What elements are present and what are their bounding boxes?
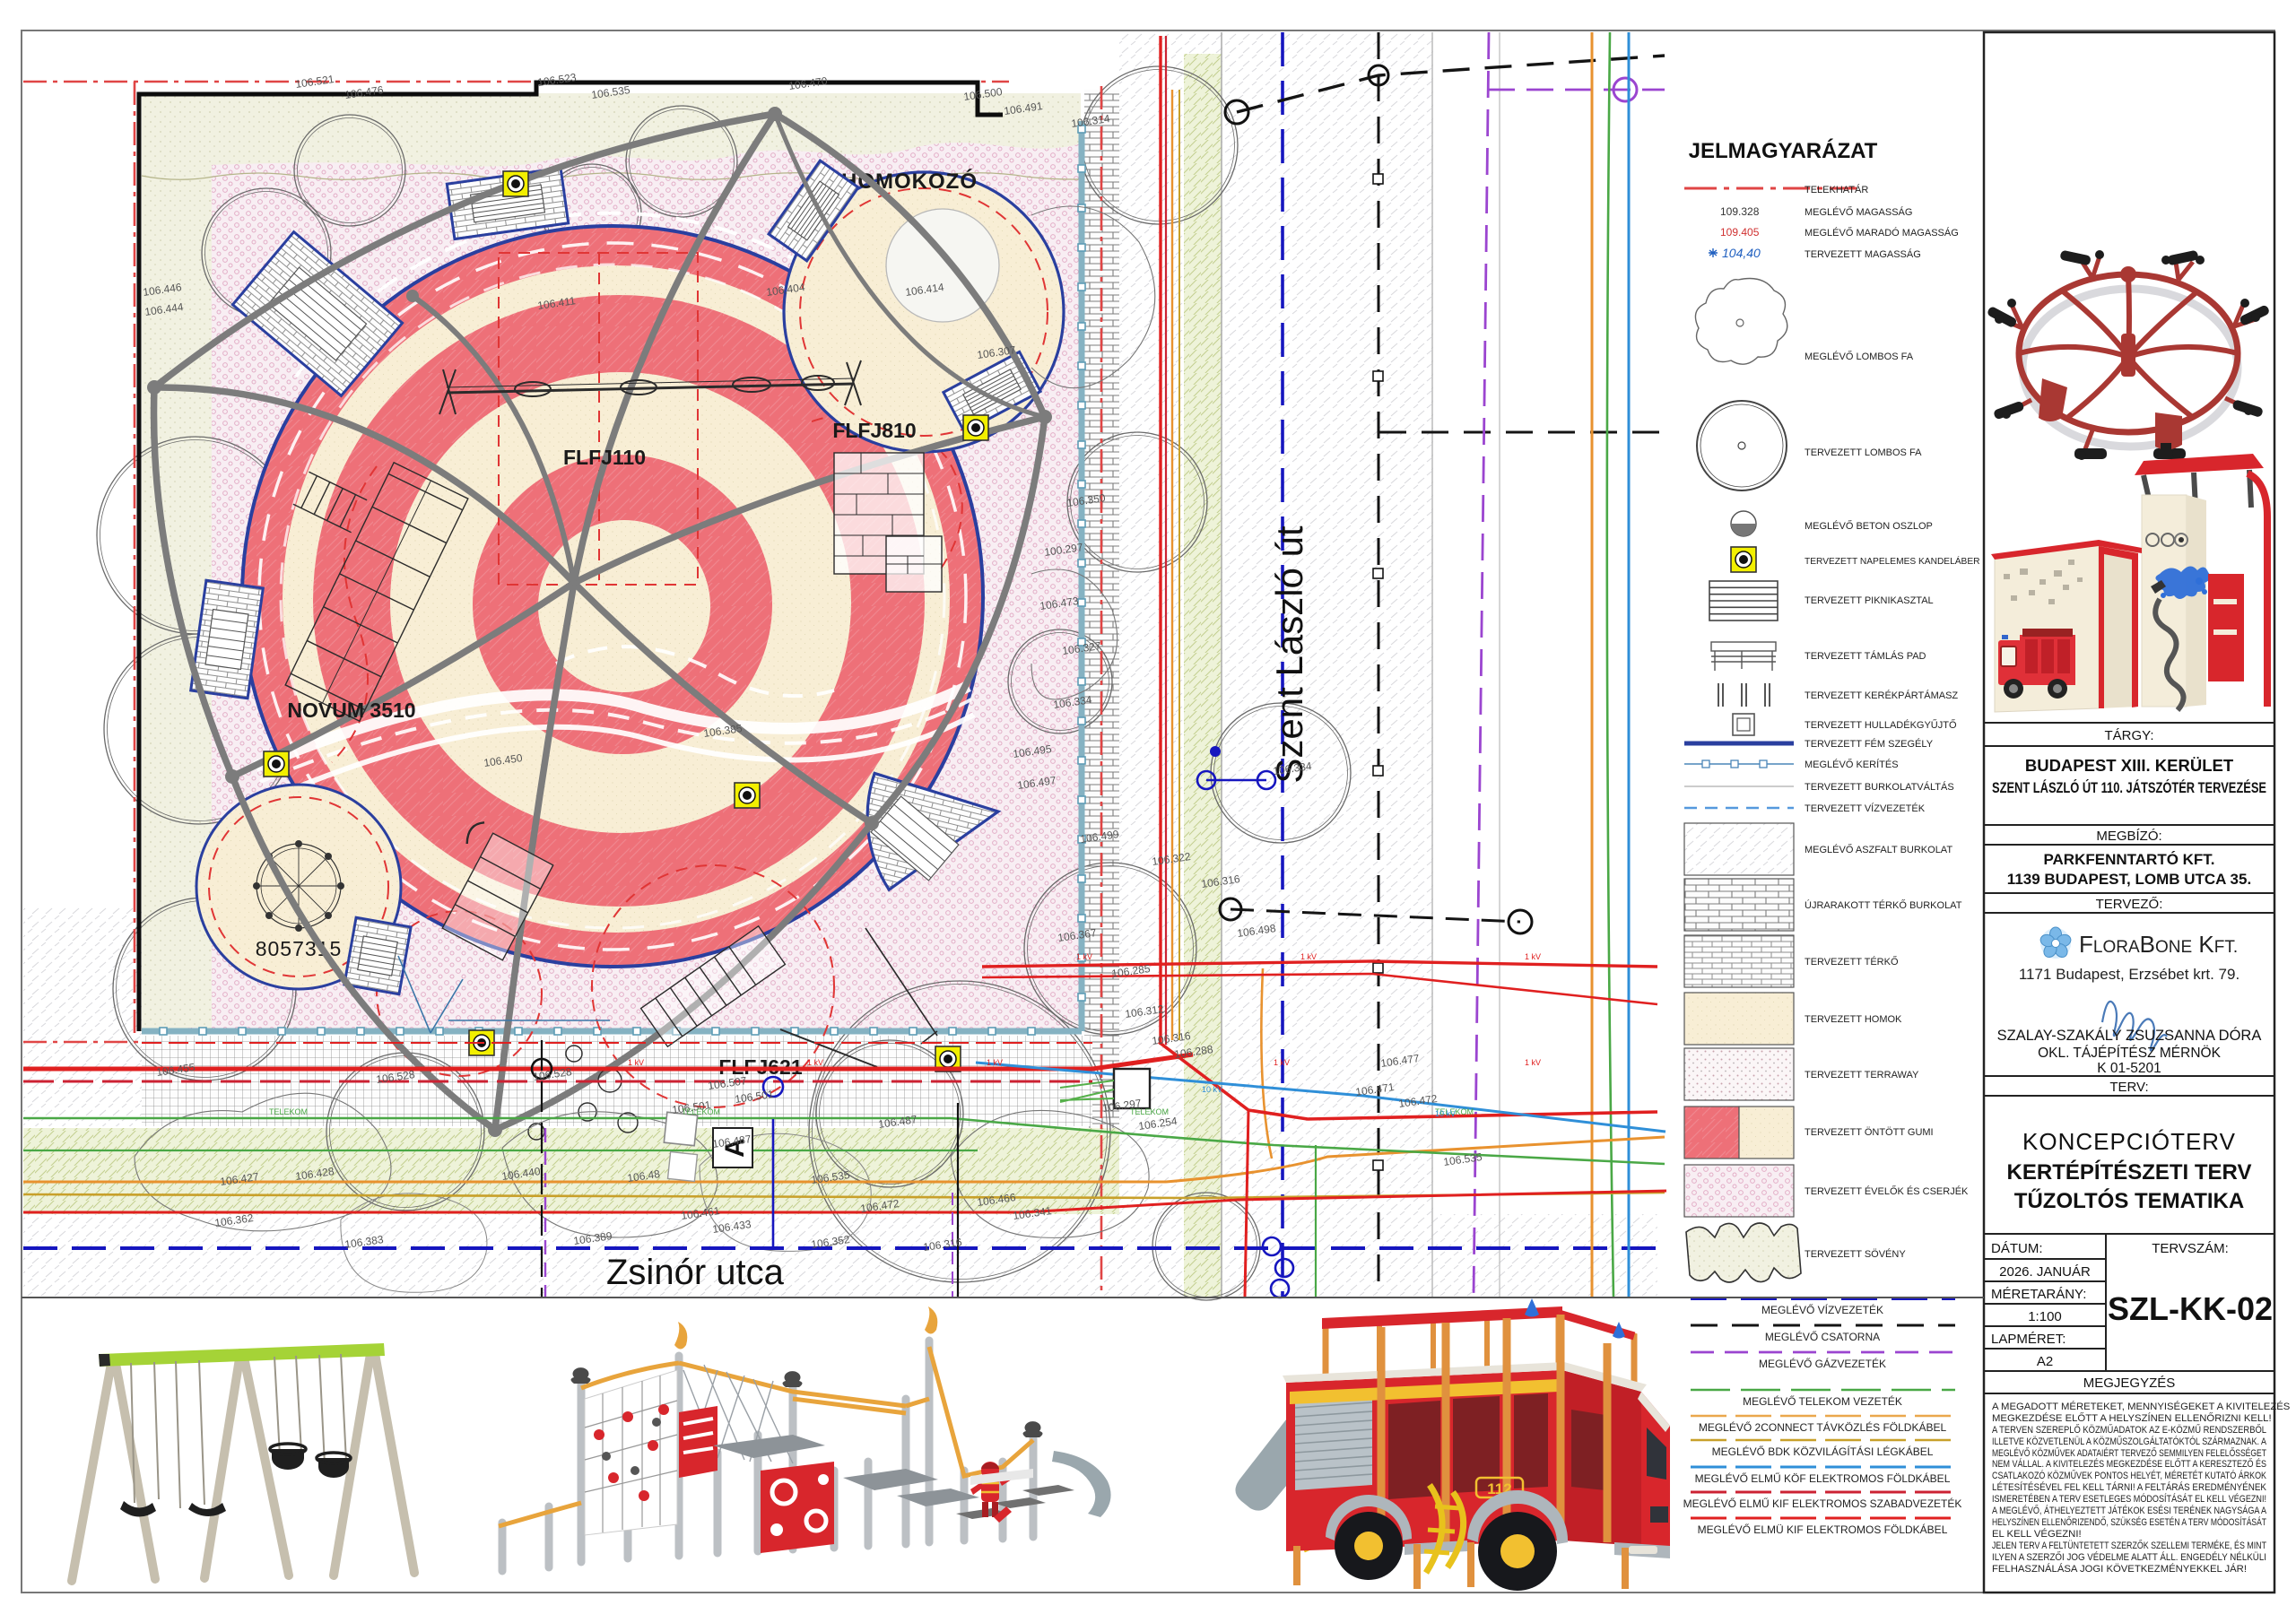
svg-text:TERVEZETT TÉRKŐ: TERVEZETT TÉRKŐ [1805,955,1899,968]
svg-text:MEGKEZDÉSE ELŐTT A HELYSZÍNEN: MEGKEZDÉSE ELŐTT A HELYSZÍNEN ELLENŐRIZN… [1992,1411,2272,1424]
svg-text:1 kV: 1 kV [807,1058,823,1067]
svg-text:TERV:: TERV: [2109,1080,2148,1095]
svg-text:Szent László út: Szent László út [1268,525,1310,784]
svg-text:A MEGADOTT MÉRETEKET, MENNYISÉ: A MEGADOTT MÉRETEKET, MENNYISÉGEKET A KI… [1992,1401,2291,1412]
svg-text:A MEGLÉVŐ, ÁTHELYEZTETT JÁTÉKO: A MEGLÉVŐ, ÁTHELYEZTETT JÁTÉKOK ESÉSI TE… [1992,1504,2266,1516]
svg-text:1 kV: 1 kV [1076,952,1092,961]
svg-text:104,40: 104,40 [1722,246,1761,260]
svg-text:TELEKOM: TELEKOM [682,1107,720,1116]
svg-text:MEGLÉVŐ MAGASSÁG: MEGLÉVŐ MAGASSÁG [1805,205,1912,218]
svg-text:TERVEZETT PIKNIKASZTAL: TERVEZETT PIKNIKASZTAL [1805,595,1934,606]
svg-text:1 kV: 1 kV [1300,952,1317,961]
svg-text:MEGLÉVŐ KÖZMŰVEK ADATAIÉRT TER: MEGLÉVŐ KÖZMŰVEK ADATAIÉRT TERVEZŐ SEMMI… [1992,1446,2266,1459]
svg-text:TERVEZETT BURKOLATVÁLTÁS: TERVEZETT BURKOLATVÁLTÁS [1805,781,1954,793]
svg-text:JELEN TERV A FELTÜNTETETT SZER: JELEN TERV A FELTÜNTETETT SZERZŐK SZELLE… [1992,1539,2266,1551]
svg-text:10 kV: 10 kV [1202,1085,1222,1094]
svg-text:MÉRETARÁNY:: MÉRETARÁNY: [1991,1287,2086,1302]
svg-text:1171 Budapest, Erzsébet krt. 7: 1171 Budapest, Erzsébet krt. 79. [2019,966,2239,983]
svg-text:EL KELL VÉGEZNI!: EL KELL VÉGEZNI! [1992,1528,2082,1540]
svg-text:MEGLÉVŐ MARADÓ MAGASSÁG: MEGLÉVŐ MARADÓ MAGASSÁG [1805,226,1959,239]
svg-text:OKL. TÁJÉPÍTÉSZ MÉRNÖK: OKL. TÁJÉPÍTÉSZ MÉRNÖK [2038,1045,2222,1061]
svg-text:SZL-KK-02: SZL-KK-02 [2108,1290,2273,1327]
svg-text:NOVUM 3510: NOVUM 3510 [287,699,415,722]
svg-text:NEM VÁLLAL. A KIVITELEZÉS MEGK: NEM VÁLLAL. A KIVITELEZÉS MEGKEZDÉSE ELŐ… [1992,1457,2266,1470]
svg-text:TERVEZETT MAGASSÁG: TERVEZETT MAGASSÁG [1805,248,1921,260]
svg-text:TERVSZÁM:: TERVSZÁM: [2152,1241,2229,1256]
svg-text:KERTÉPÍTÉSZETI TERV: KERTÉPÍTÉSZETI TERV [2007,1159,2252,1185]
svg-text:TERVEZETT HOMOK: TERVEZETT HOMOK [1805,1014,1902,1025]
svg-text:MEGLÉVŐ GÁZVEZETÉK: MEGLÉVŐ GÁZVEZETÉK [1759,1357,1886,1370]
svg-text:A TERVEN SZEREPLŐ KÖZMŰADATOK: A TERVEN SZEREPLŐ KÖZMŰADATOK AZ E-KÖZMŰ… [1992,1423,2266,1436]
svg-text:1:100: 1:100 [2028,1309,2062,1324]
svg-text:SZALAY-SZAKÁLY ZSUZSANNA DÓRA: SZALAY-SZAKÁLY ZSUZSANNA DÓRA [1997,1027,2262,1044]
svg-text:TELEKOM: TELEKOM [269,1107,308,1116]
svg-text:TÁRGY:: TÁRGY: [2104,728,2153,743]
svg-text:1 kV: 1 kV [628,1058,644,1067]
svg-text:HELYSZÍNEN ELLENŐRIZENDŐ, SZÜK: HELYSZÍNEN ELLENŐRIZENDŐ, SZÜKSÉG ESETÉN… [1992,1515,2266,1528]
svg-text:MEGLÉVŐ VÍZVEZETÉK: MEGLÉVŐ VÍZVEZETÉK [1761,1303,1883,1316]
svg-text:DÁTUM:: DÁTUM: [1991,1241,2043,1256]
svg-text:TERVEZETT VÍZVEZETÉK: TERVEZETT VÍZVEZETÉK [1805,803,1926,814]
svg-text:ILYEN A SZERZŐI JOG VÉDELME AL: ILYEN A SZERZŐI JOG VÉDELME ALATT ÁLL. E… [1992,1550,2266,1563]
svg-text:ISMERETÉBEN A TERV ESETLEGES: ISMERETÉBEN A TERV ESETLEGES MÓDOSÍTÁSÁT… [1992,1493,2266,1505]
svg-text:TERVEZŐ:: TERVEZŐ: [2096,897,2163,912]
svg-text:TERVEZETT KERÉKPÁRTÁMASZ: TERVEZETT KERÉKPÁRTÁMASZ [1805,690,1958,701]
svg-text:109.328: 109.328 [1720,205,1760,218]
svg-text:TELEKOM: TELEKOM [1130,1107,1169,1116]
svg-text:JELMAGYARÁZAT: JELMAGYARÁZAT [1689,138,1878,163]
svg-text:TŰZOLTÓS TEMATIKA: TŰZOLTÓS TEMATIKA [2014,1188,2244,1213]
svg-text:1 kV: 1 kV [1525,1058,1541,1067]
svg-text:KONCEPCIÓTERV: KONCEPCIÓTERV [2022,1128,2236,1155]
svg-text:MEGLÉVŐ KERÍTÉS: MEGLÉVŐ KERÍTÉS [1805,758,1899,770]
svg-text:MEGLÉVŐ ELMŰ KÖF ELEKTROMOS FÖ: MEGLÉVŐ ELMŰ KÖF ELEKTROMOS FÖLDKÁBEL [1695,1471,1951,1485]
svg-text:MEGJEGYZÉS: MEGJEGYZÉS [2083,1376,2176,1391]
svg-text:FLFJ810: FLFJ810 [832,419,916,442]
svg-text:TERVEZETT SÖVÉNY: TERVEZETT SÖVÉNY [1805,1248,1906,1260]
svg-text:1139 BUDAPEST, LOMB UTCA 35.: 1139 BUDAPEST, LOMB UTCA 35. [2007,871,2251,888]
svg-text:FELHASZNÁLÁSA JOGI KÖVETKEZMÉN: FELHASZNÁLÁSA JOGI KÖVETKEZMÉNYEKKEL JÁR… [1992,1563,2247,1575]
svg-text:MEGLÉVŐ CSATORNA: MEGLÉVŐ CSATORNA [1765,1330,1880,1343]
svg-text:Zsinór utca: Zsinór utca [606,1253,785,1292]
svg-text:PARKFENNTARTÓ KFT.: PARKFENNTARTÓ KFT. [2043,851,2214,868]
svg-text:TERVEZETT NAPELEMES KANDELÁBER: TERVEZETT NAPELEMES KANDELÁBER [1805,555,1980,567]
svg-text:A2: A2 [2037,1354,2053,1369]
svg-text:MEGLÉVŐ BETON OSZLOP: MEGLÉVŐ BETON OSZLOP [1805,519,1933,532]
svg-text:MEGLÉVŐ ELMÜ KIF ELEKTROMOS FÖ: MEGLÉVŐ ELMÜ KIF ELEKTROMOS FÖLDKÁBEL [1698,1523,1948,1536]
svg-text:10 kV: 10 kV [1435,1109,1456,1118]
svg-text:TERVEZETT LOMBOS FA: TERVEZETT LOMBOS FA [1805,447,1922,458]
svg-text:CSATLAKOZÓ KÖZMŰVEK PONTOS HEL: CSATLAKOZÓ KÖZMŰVEK PONTOS HELYÉT, MÉRET… [1992,1469,2266,1481]
svg-text:TERVEZETT FÉM SZEGÉLY: TERVEZETT FÉM SZEGÉLY [1805,738,1934,750]
svg-text:ÚJRARAKOTT TÉRKŐ BURKOLAT: ÚJRARAKOTT TÉRKŐ BURKOLAT [1805,898,1962,911]
svg-text:LÉTESÍTÉSÉVEL FEL KELL TÁRNI!: LÉTESÍTÉSÉVEL FEL KELL TÁRNI! A FELTÁRÁS… [1992,1481,2266,1493]
svg-text:1 kV: 1 kV [1525,952,1541,961]
svg-text:TERVEZETT HULLADÉKGYŰJTŐ: TERVEZETT HULLADÉKGYŰJTŐ [1805,718,1957,731]
svg-text:ILLETVE KÖZVETLENÜL A KÖZMŰSZO: ILLETVE KÖZVETLENÜL A KÖZMŰSZOLGÁLTATÓKT… [1992,1435,2266,1447]
svg-text:MEGLÉVŐ ELMŰ KIF ELEKTROMOS SZ: MEGLÉVŐ ELMŰ KIF ELEKTROMOS SZABADVEZETÉ… [1683,1497,1962,1510]
svg-text:FLFJ110: FLFJ110 [563,446,646,469]
svg-text:K 01-5201: K 01-5201 [2097,1061,2161,1076]
svg-text:TERVEZETT TERRAWAY: TERVEZETT TERRAWAY [1805,1070,1919,1081]
svg-text:TERVEZETT ÉVELŐK ÉS CSERJÉK: TERVEZETT ÉVELŐK ÉS CSERJÉK [1805,1185,1969,1197]
svg-text:BUDAPEST XIII. KERÜLET: BUDAPEST XIII. KERÜLET [2025,756,2234,775]
svg-text:TERVEZETT ÖNTÖTT GUMI: TERVEZETT ÖNTÖTT GUMI [1805,1127,1934,1138]
svg-text:MEGBÍZÓ:: MEGBÍZÓ: [2096,829,2161,844]
svg-text:109.405: 109.405 [1720,226,1760,239]
svg-text:MEGLÉVŐ BDK KÖZVILÁGÍTÁSI LÉGK: MEGLÉVŐ BDK KÖZVILÁGÍTÁSI LÉGKÁBEL [1712,1445,1934,1458]
svg-text:LAPMÉRET:: LAPMÉRET: [1991,1332,2066,1347]
svg-text:1 kV: 1 kV [987,1058,1003,1067]
svg-text:TELEKHATÁR: TELEKHATÁR [1805,184,1868,195]
svg-text:MEGLÉVŐ LOMBOS FA: MEGLÉVŐ LOMBOS FA [1805,350,1914,362]
svg-text:TERVEZETT TÁMLÁS PAD: TERVEZETT TÁMLÁS PAD [1805,650,1926,662]
svg-text:1 kV: 1 kV [1274,1058,1290,1067]
svg-text:MEGLÉVŐ 2CONNECT TÁVKÖZLÉS FÖL: MEGLÉVŐ 2CONNECT TÁVKÖZLÉS FÖLDKÁBEL [1699,1420,1947,1434]
svg-text:2026. JANUÁR: 2026. JANUÁR [1999,1264,2091,1280]
svg-text:MEGLÉVŐ TELEKOM VEZETÉK: MEGLÉVŐ TELEKOM VEZETÉK [1743,1394,1902,1408]
svg-text:SZENT LÁSZLÓ ÚT 110. JÁTSZÓTÉR: SZENT LÁSZLÓ ÚT 110. JÁTSZÓTÉR TERVEZÉSE [1992,779,2266,796]
svg-text:MEGLÉVŐ ASZFALT BURKOLAT: MEGLÉVŐ ASZFALT BURKOLAT [1805,843,1952,855]
